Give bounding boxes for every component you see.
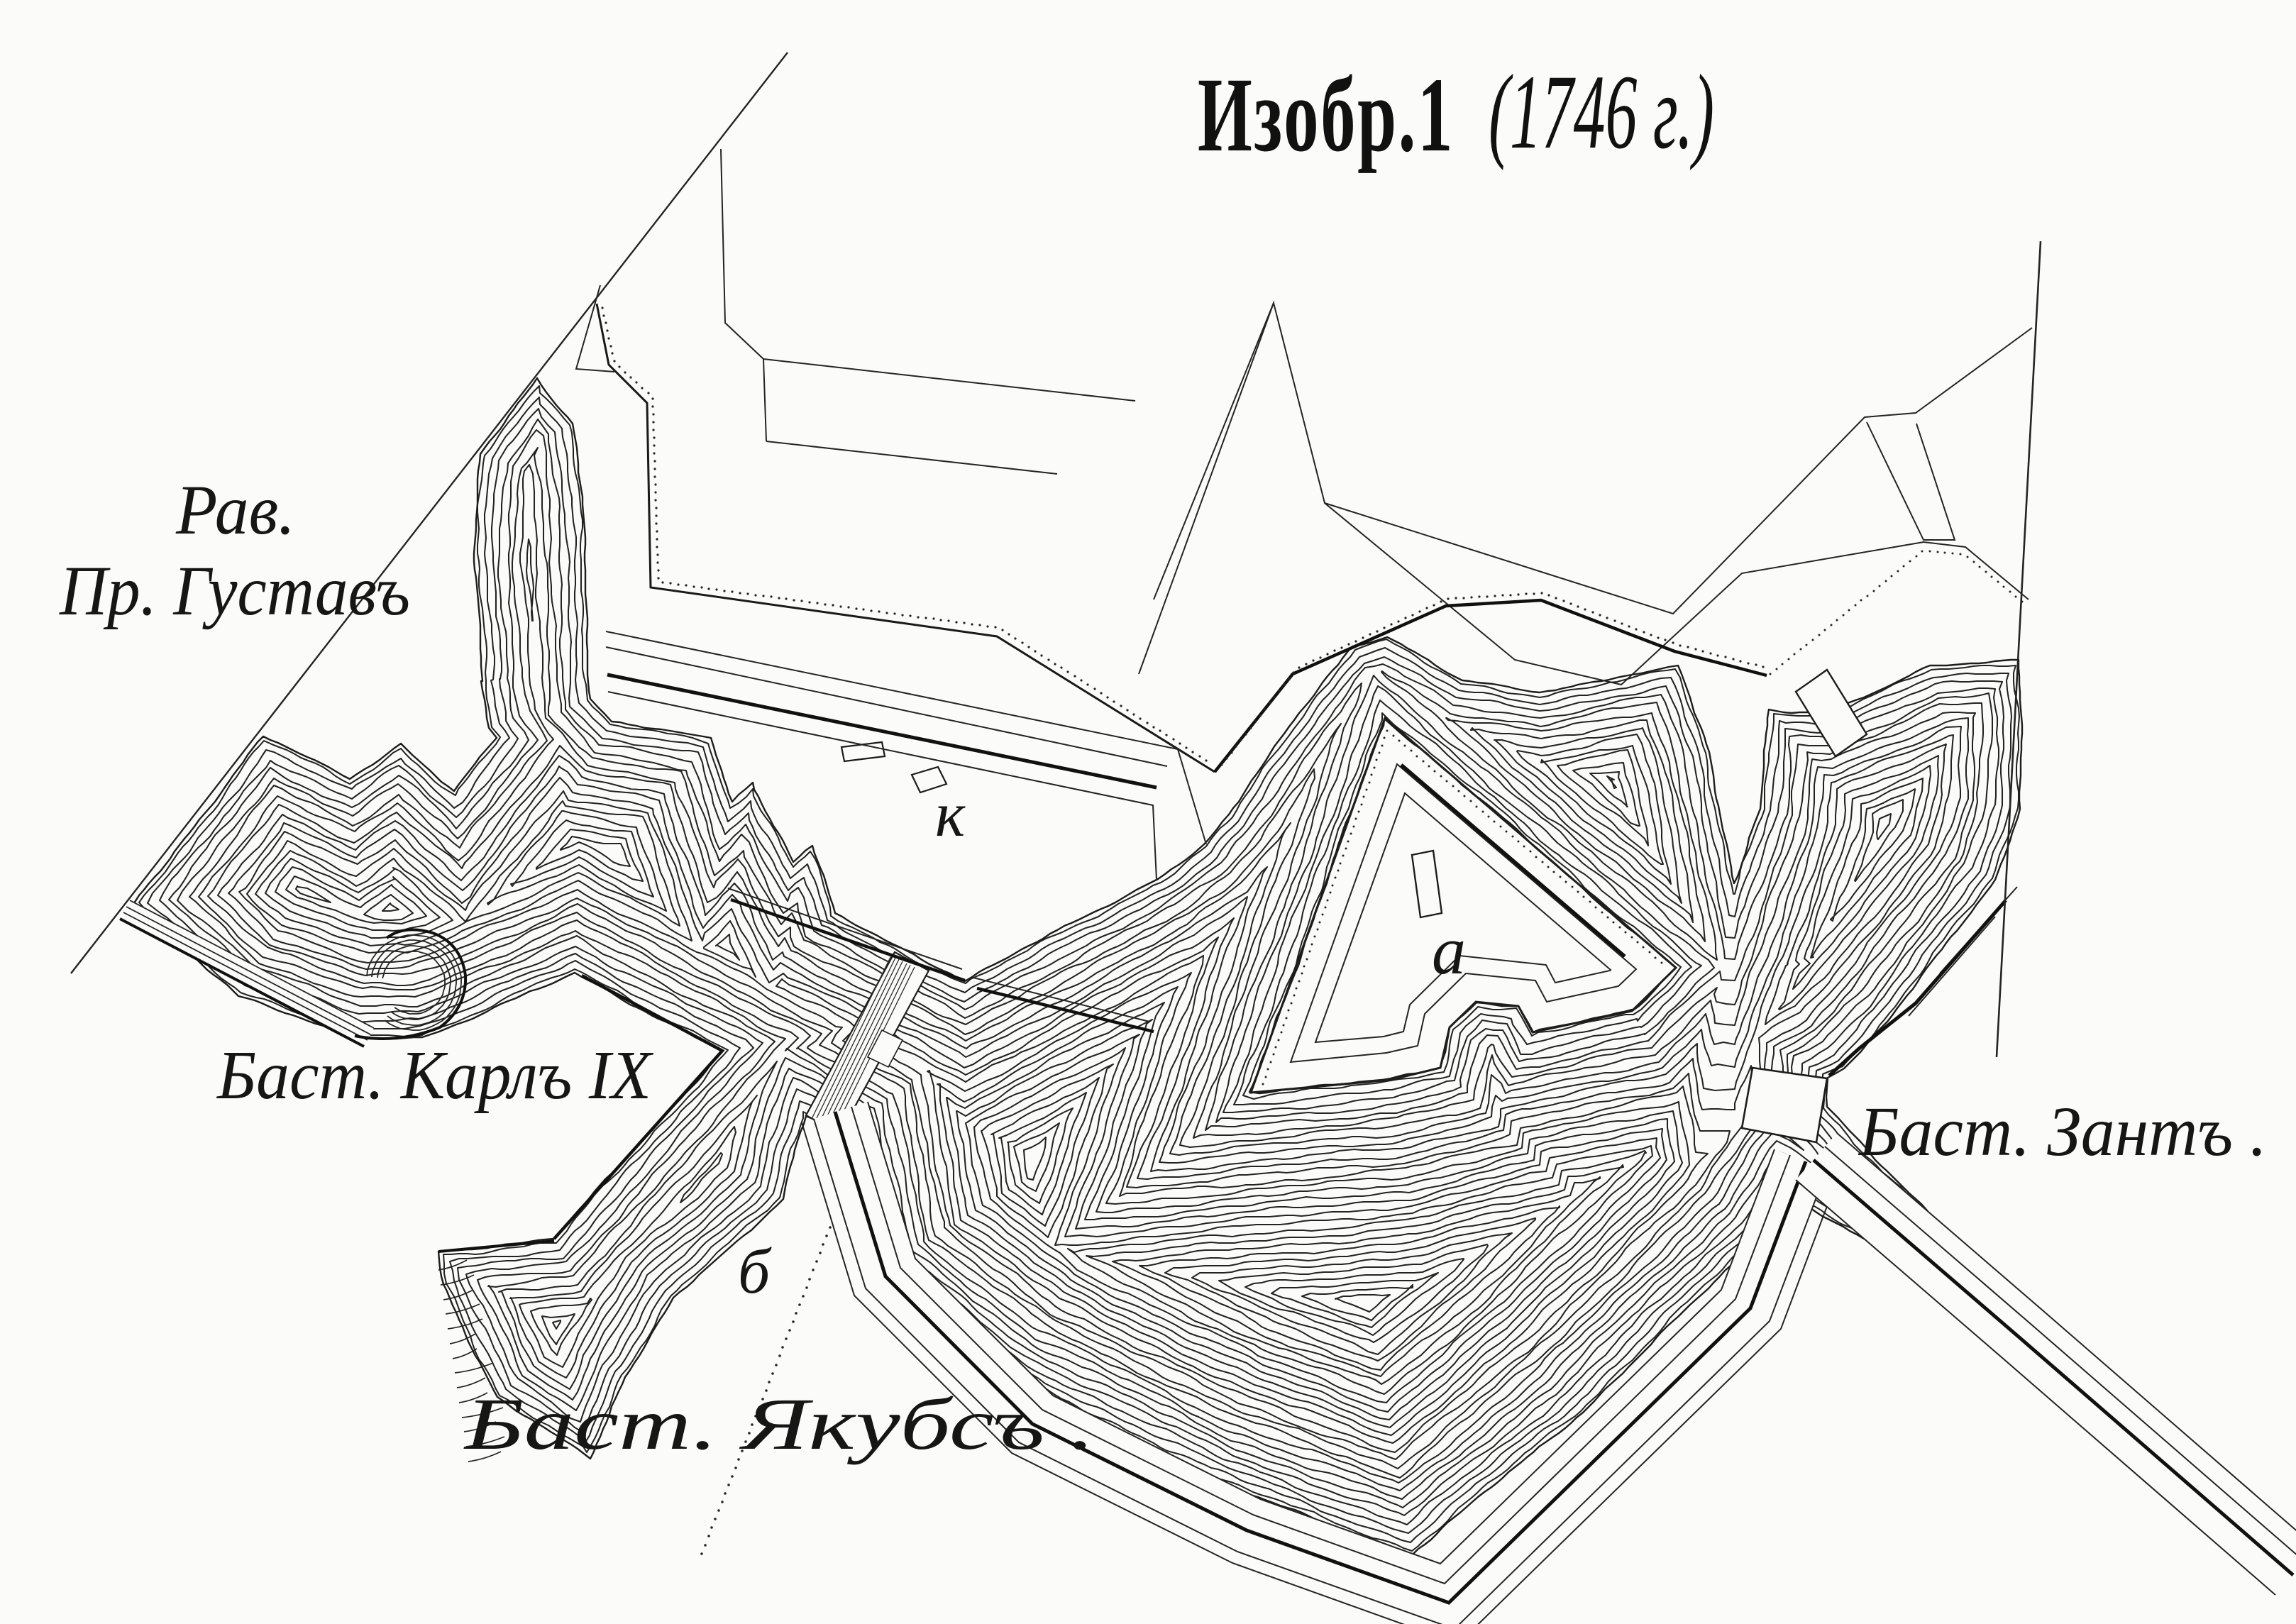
svg-text:Баст. Якубсъ .: Баст. Якубсъ . xyxy=(463,1383,1095,1465)
svg-text:Изобр.1: Изобр.1 xyxy=(1198,56,1455,174)
svg-text:Баст. Зантъ .: Баст. Зантъ . xyxy=(1858,1092,2267,1171)
svg-text:Пр. Густавъ: Пр. Густавъ xyxy=(59,551,410,630)
svg-text:Рав.: Рав. xyxy=(175,470,295,549)
svg-text:а: а xyxy=(1432,912,1466,988)
svg-text:к: к xyxy=(935,780,966,850)
svg-text:Баст. Карлъ IX: Баст. Карлъ IX xyxy=(216,1037,654,1114)
svg-text:б: б xyxy=(738,1237,772,1307)
svg-text:(1746 г.): (1746 г.) xyxy=(1489,53,1714,171)
